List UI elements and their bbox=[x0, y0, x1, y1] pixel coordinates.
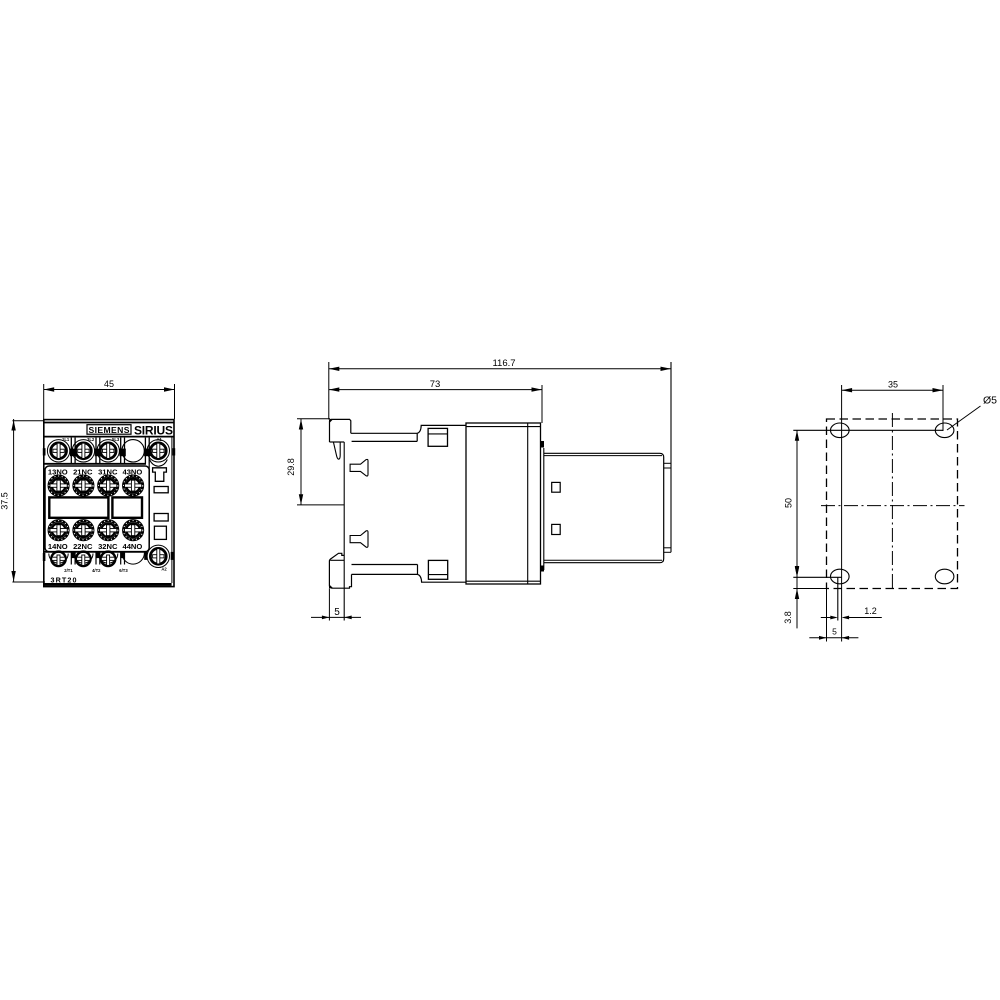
svg-text:29.8: 29.8 bbox=[286, 458, 296, 476]
svg-text:3L2: 3L2 bbox=[87, 437, 95, 442]
svg-text:22NC: 22NC bbox=[73, 542, 93, 551]
svg-text:SIRIUS: SIRIUS bbox=[134, 423, 173, 437]
svg-text:1.2: 1.2 bbox=[864, 606, 877, 616]
svg-text:73: 73 bbox=[430, 379, 441, 390]
svg-text:4/T2: 4/T2 bbox=[92, 568, 101, 573]
svg-text:3.8: 3.8 bbox=[783, 611, 793, 624]
svg-text:14NO: 14NO bbox=[48, 542, 68, 551]
svg-text:SIEMENS: SIEMENS bbox=[89, 425, 130, 435]
svg-text:3RT20: 3RT20 bbox=[51, 575, 77, 584]
svg-text:50: 50 bbox=[784, 498, 794, 508]
svg-text:35: 35 bbox=[888, 380, 898, 390]
svg-text:5: 5 bbox=[334, 607, 340, 618]
svg-text:A2: A2 bbox=[161, 567, 167, 572]
svg-text:37.5: 37.5 bbox=[0, 492, 9, 510]
svg-text:32NC: 32NC bbox=[98, 542, 118, 551]
svg-text:45: 45 bbox=[104, 379, 114, 389]
svg-text:A1: A1 bbox=[157, 437, 163, 442]
svg-text:Ø5: Ø5 bbox=[983, 395, 997, 407]
svg-text:6/T3: 6/T3 bbox=[119, 568, 128, 573]
svg-text:1L1: 1L1 bbox=[62, 437, 70, 442]
svg-text:44NO: 44NO bbox=[122, 542, 142, 551]
svg-text:5: 5 bbox=[832, 627, 837, 637]
svg-text:5L3: 5L3 bbox=[112, 437, 120, 442]
svg-text:2/T1: 2/T1 bbox=[64, 568, 73, 573]
svg-text:116.7: 116.7 bbox=[492, 358, 515, 369]
